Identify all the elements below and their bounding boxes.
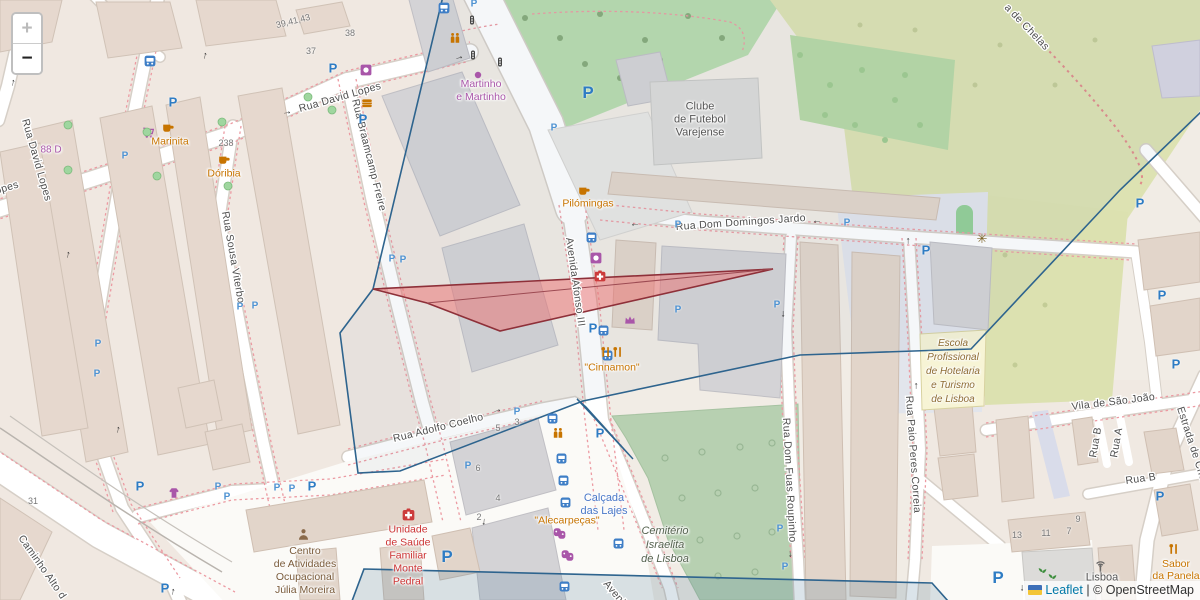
attribution-bar: Leaflet | © OpenStreetMap xyxy=(1023,581,1200,600)
zoom-control: + − xyxy=(11,12,43,75)
health-centre-icon xyxy=(403,509,415,521)
shop-icon xyxy=(591,253,602,264)
bus-stop-icon xyxy=(557,454,567,464)
zoom-in-button[interactable]: + xyxy=(13,14,41,44)
attribution-separator: | xyxy=(1086,583,1089,597)
bus-stop-icon xyxy=(559,476,569,486)
pharmacy-icon xyxy=(595,270,606,281)
ukraine-flag-icon xyxy=(1028,585,1042,595)
map-tiles: Rua David Lopes Rua David Lopes Rua Davi… xyxy=(0,0,1200,600)
shop-icon xyxy=(361,65,372,76)
osm-attribution[interactable]: © OpenStreetMap xyxy=(1093,583,1194,597)
traffic-signal-icon xyxy=(471,51,475,60)
zoom-out-button[interactable]: − xyxy=(13,44,41,73)
bus-stop-icon xyxy=(614,539,624,549)
bus-stop-icon xyxy=(439,3,450,14)
bus-stop-icon xyxy=(560,582,570,592)
leaflet-link[interactable]: Leaflet xyxy=(1045,583,1083,597)
bus-stop-icon xyxy=(145,56,156,67)
bus-stop-icon xyxy=(587,233,597,243)
bus-stop-icon xyxy=(599,326,609,336)
traffic-signal-icon xyxy=(498,58,502,67)
map-canvas[interactable]: Rua David Lopes Rua David Lopes Rua Davi… xyxy=(0,0,1200,600)
bus-stop-icon xyxy=(548,414,558,424)
bus-stop-icon xyxy=(561,498,571,508)
shop-node-icon xyxy=(475,72,481,78)
traffic-signal-icon xyxy=(470,16,474,25)
